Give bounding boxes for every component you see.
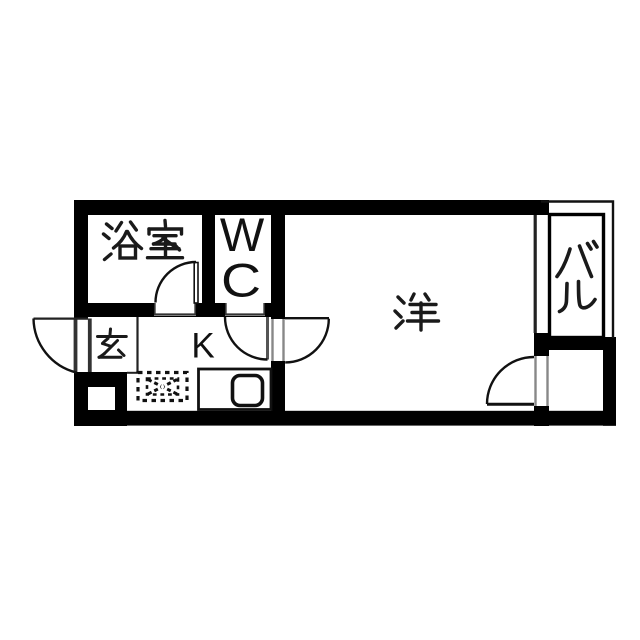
svg-text:K: K: [191, 327, 214, 366]
svg-text:C: C: [221, 254, 261, 307]
